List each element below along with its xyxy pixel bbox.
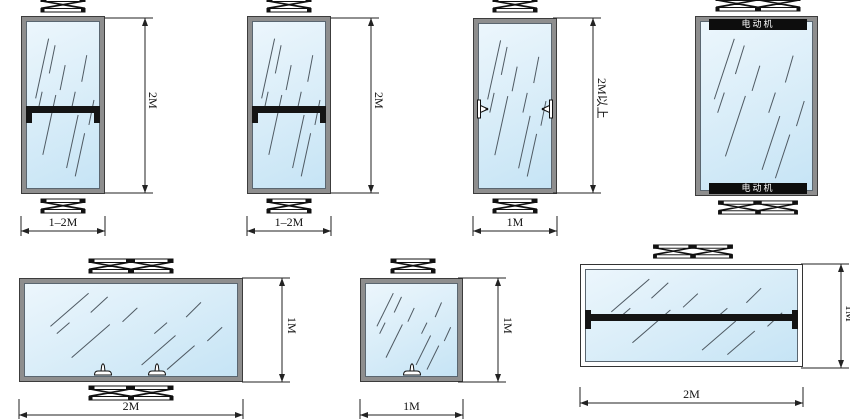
height-dimension-label: 1M [843,305,850,322]
window-figure-7: 1M 2M [0,0,850,420]
scissor-actuator-icon [560,293,575,339]
width-dimension-label: 2M [576,388,807,401]
transom-bracket-right [792,310,798,329]
transom-bracket-left [585,310,591,329]
window-types-diagram: 2M 1–2M 2M 1–2M [0,0,850,420]
transom-bar [588,314,795,321]
scissor-actuator-icon [650,244,736,259]
